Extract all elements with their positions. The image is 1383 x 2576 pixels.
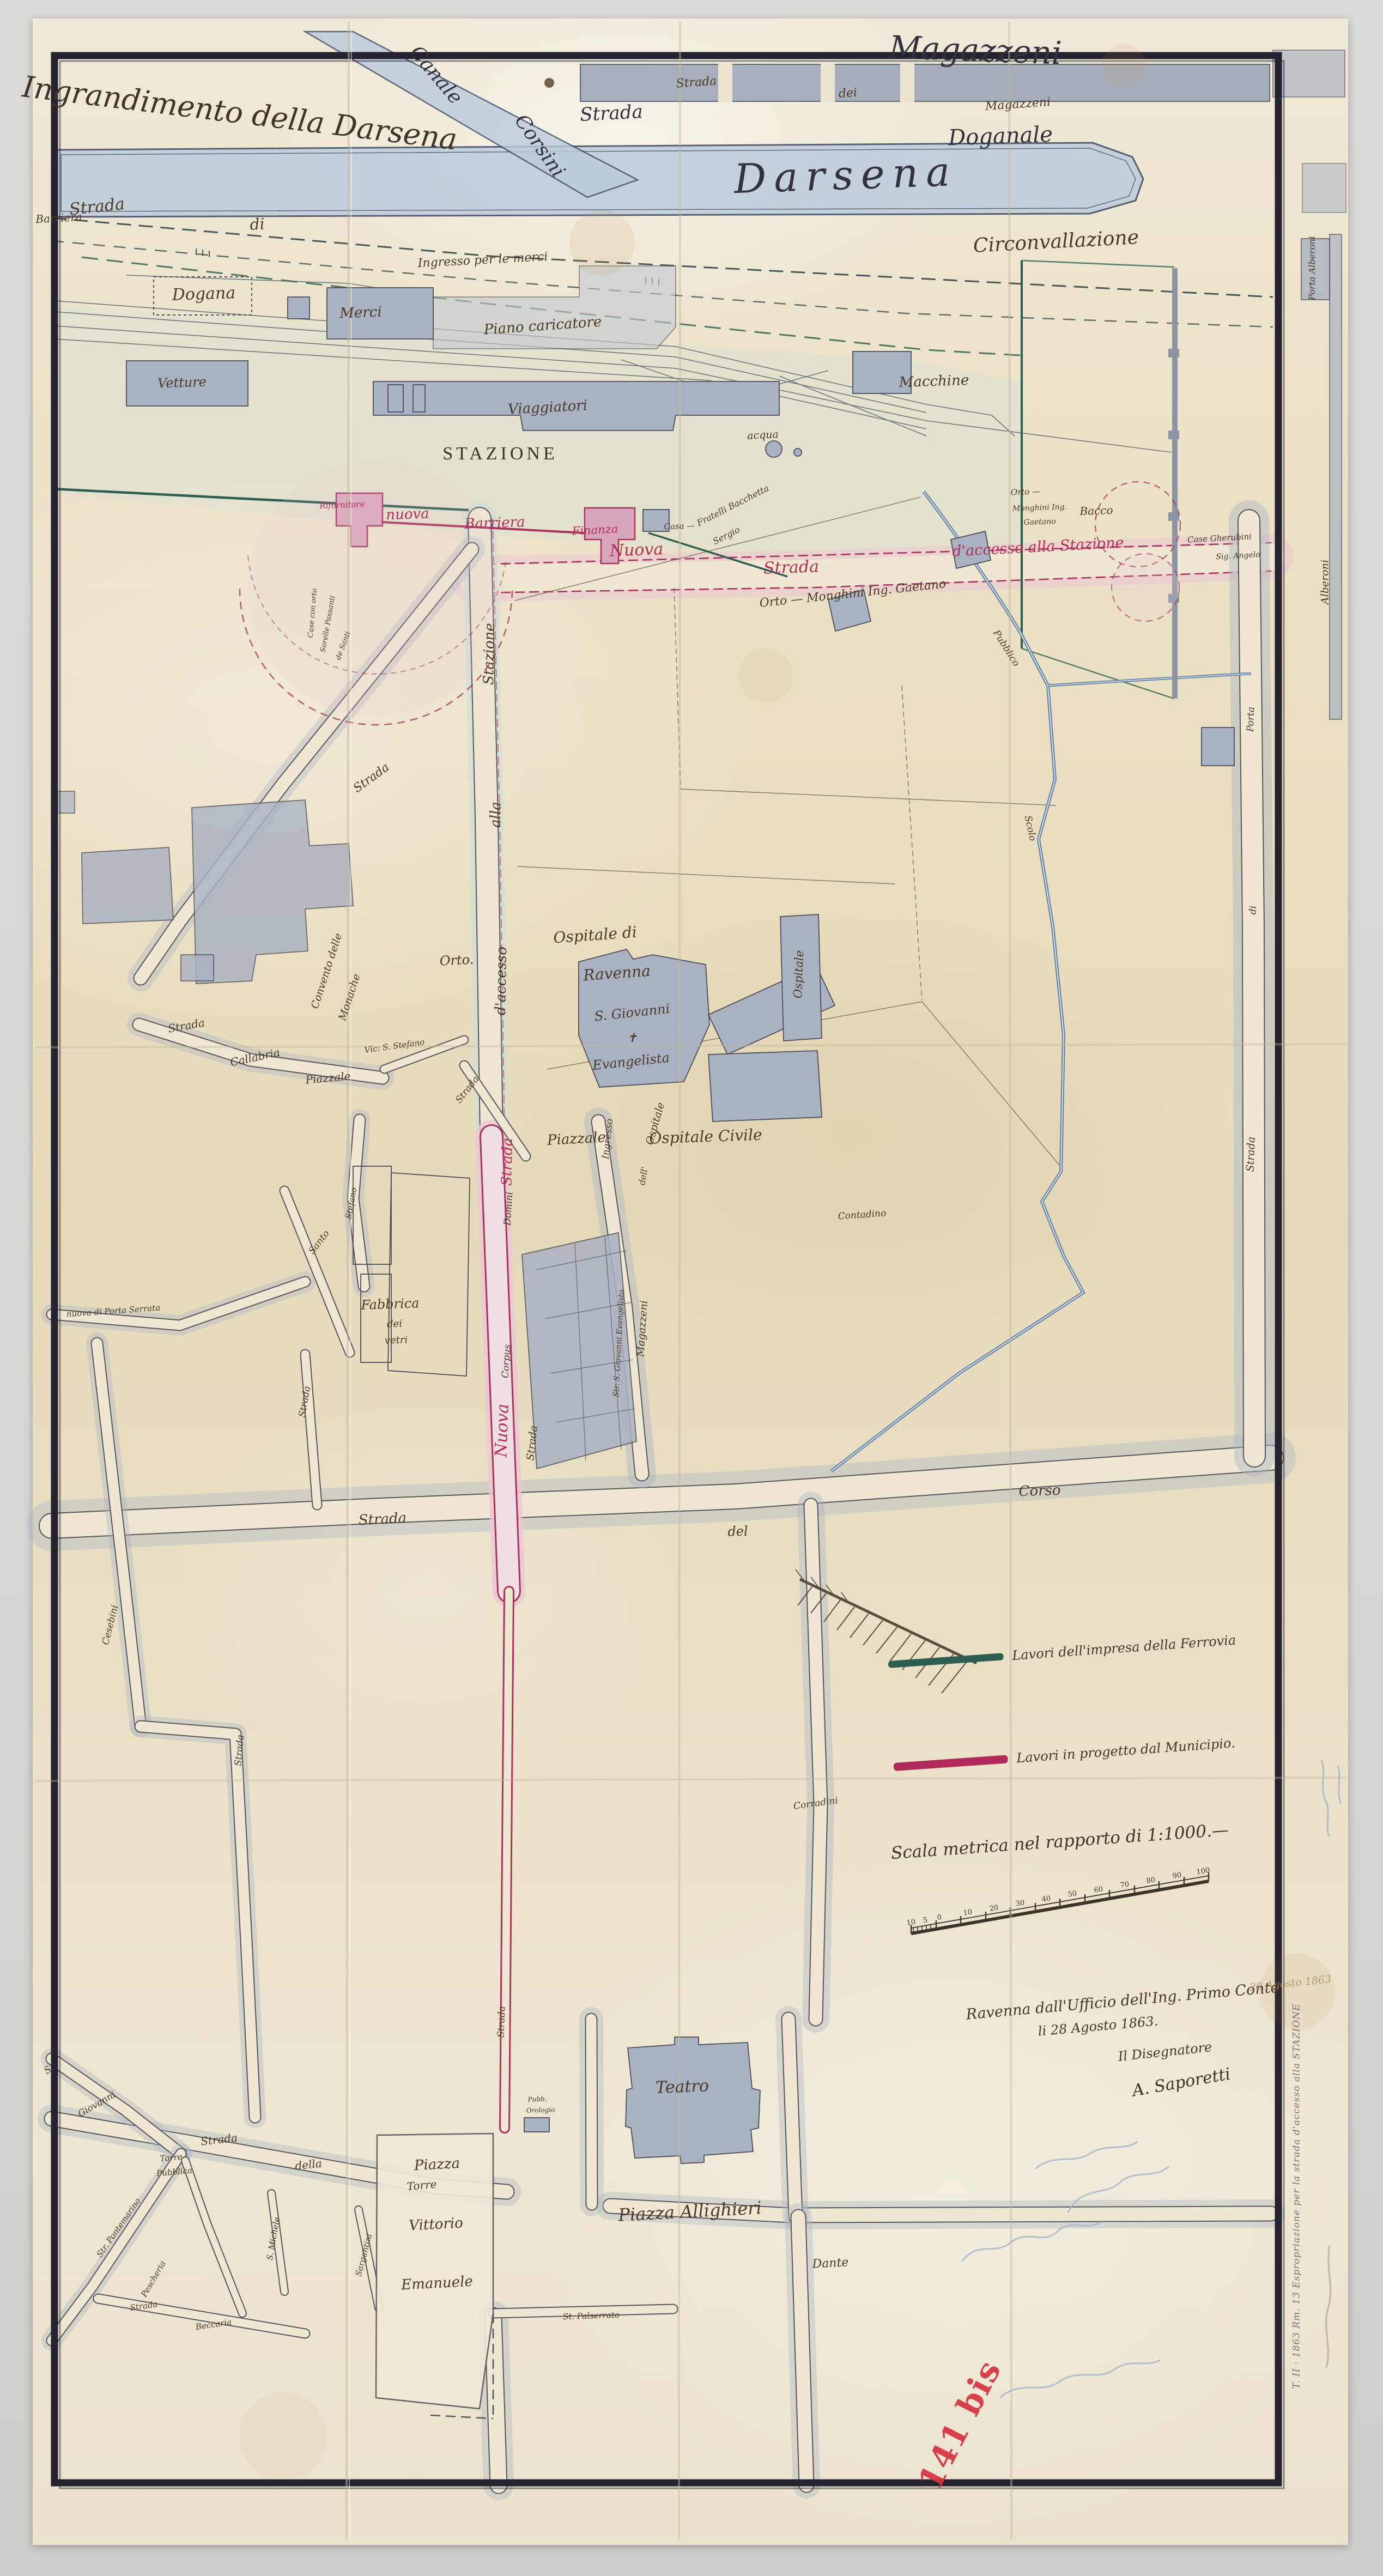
map-label: Callabria (229, 1047, 281, 1068)
map-label: Emanuele (401, 2275, 474, 2293)
map-label: Nuova (493, 1403, 511, 1457)
map-label: 40 (1041, 1895, 1051, 1903)
map-label: Ospitale (792, 950, 805, 999)
map-label: 10 (963, 1908, 973, 1917)
map-label: Strada (69, 196, 126, 218)
map-label: acqua (747, 429, 779, 441)
map-label: Piazza (414, 2156, 460, 2173)
map-label: Strada (525, 1425, 539, 1461)
map-label: del (727, 1524, 748, 1538)
map-label: Doganale (948, 124, 1053, 149)
map-label: Porta Alberoni (1308, 236, 1317, 300)
map-label: dei (838, 87, 858, 100)
map-label: Merci (339, 305, 382, 321)
map-label: Sergio (712, 525, 742, 546)
map-label: Stazione (482, 623, 497, 685)
map-label: Darsena (733, 151, 959, 199)
map-label: Gaetano (1023, 518, 1056, 526)
map-label: Teatro (656, 2078, 709, 2096)
map-label: Fratelli Bacchetta (695, 484, 770, 528)
map-labels-group: CanaleCorsiniMagazzeniStradadeiMagazzeni… (0, 0, 1383, 2576)
map-label: Corpus (501, 1344, 512, 1379)
map-label: Corso (1018, 1483, 1061, 1499)
map-label: St. Palserrato (563, 2311, 620, 2322)
map-label: Porta (1246, 707, 1257, 732)
map-label: Dogana (172, 285, 235, 304)
map-label: Str. S. Giovanni Evangelista (612, 1289, 626, 1397)
map-label: Piazzale (305, 1070, 351, 1085)
edge-annotation: T. II · 1863 Rm. 13 Espropriazione per l… (1293, 2004, 1302, 2389)
map-label: Piazzale (547, 1130, 606, 1148)
map-label: S. Michele (266, 2216, 282, 2260)
map-label: Piano caricatore (483, 314, 602, 337)
map-label: Case Gherubini (1187, 532, 1252, 544)
map-label: 90 (1172, 1871, 1182, 1880)
map-label: Pubblica (156, 2167, 193, 2178)
map-label: Strada (454, 1075, 481, 1105)
map-label: Pescheria (140, 2259, 167, 2298)
map-label: Sorelle Passanti (319, 595, 336, 653)
map-label: nuova di Porta Serrata (66, 1304, 160, 1319)
map-label: Magazzeni (635, 1300, 650, 1357)
map-label: 20 (989, 1904, 999, 1912)
map-label: Ingresso per le merci (417, 251, 548, 270)
map-label: Sargantini (354, 2233, 373, 2277)
map-label: Ospitale Civile (649, 1127, 762, 1146)
map-label: Domini (503, 1192, 514, 1226)
map-label: 100 (1196, 1867, 1211, 1876)
map-label: Strada (351, 761, 391, 795)
map-label: Circonvallazione (973, 228, 1139, 256)
map-label: Torre (160, 2153, 183, 2163)
map-label: Strada (676, 75, 717, 90)
map-label: Orto. (439, 953, 474, 967)
map-label: Monache (337, 973, 362, 1022)
map-label: Bacco (1079, 505, 1113, 517)
map-label: nuova (386, 507, 429, 523)
map-label: Finanza (572, 523, 618, 537)
map-label: d'accesso alla Stazione (952, 535, 1125, 559)
map-label: de Santi (335, 631, 352, 661)
map-label: Strada (763, 559, 820, 577)
map-label: Orto — (1011, 488, 1041, 497)
map-label: Strada (167, 1017, 205, 1034)
map-label: d'accesso (494, 947, 509, 1016)
map-label: Orto — Monghini Ing. Gaetano (759, 578, 947, 610)
map-label: Ospitale di (553, 925, 637, 946)
map-label: Orologio (526, 2106, 555, 2114)
map-label: Pubb. (527, 2095, 547, 2102)
map-label: 10 (906, 1918, 916, 1926)
map-label: dell' (638, 1166, 650, 1186)
map-label: Strada (298, 1385, 313, 1418)
map-label: Nuova (609, 541, 663, 559)
map-label: Scolo (1023, 815, 1037, 842)
map-label: Cesebini (101, 1604, 120, 1646)
map-label: Strada (579, 102, 643, 124)
map-label: Fabbrica (361, 1296, 420, 1312)
map-label: Strada (234, 1734, 246, 1766)
map-label: 60 (1094, 1886, 1103, 1894)
map-label: Barriera (464, 515, 525, 531)
map-label: 30 (1015, 1899, 1025, 1907)
map-label: di (250, 216, 265, 232)
map-label: Contadino (838, 1209, 887, 1221)
map-label: Canale (407, 43, 466, 108)
map-label: Strada (496, 2006, 507, 2038)
map-label: Macchine (899, 373, 969, 390)
map-label: S. Giovanni (594, 1002, 670, 1023)
map-label: Corsini (511, 111, 568, 181)
map-label: STAZIONE (442, 445, 557, 463)
map-label: ✝ (627, 1033, 637, 1045)
map-label: Torre (407, 2179, 437, 2192)
map-label: Vic: S. Stefano (364, 1038, 425, 1054)
label-layer: Ingrandimento della Darsena CanaleCorsin… (0, 0, 1383, 2576)
map-label: Piazza Allighieri (618, 2199, 762, 2224)
map-label: Dante (812, 2257, 849, 2270)
map-label: Magazzeni (889, 31, 1063, 69)
map-label: Str. Pontemarino (95, 2197, 142, 2259)
map-label: Strada (200, 2132, 238, 2147)
map-label: vetri (384, 1335, 408, 1345)
map-label: Magazzeni (985, 96, 1051, 113)
map-label: 50 (1067, 1890, 1077, 1898)
map-label: Alberoni (1320, 560, 1331, 604)
map-label: Sig. Angelo (1216, 551, 1260, 561)
map-label: Giovanni (77, 2090, 118, 2119)
map-label: Viaggiatori (507, 398, 587, 417)
map-label: Convento delle (310, 932, 344, 1010)
map-label: Rifornitore (319, 500, 365, 510)
map-label: Casa — (664, 522, 695, 531)
map-label: Strada (358, 1511, 407, 1528)
map-label: della (294, 2157, 322, 2171)
map-label: Vittorio (409, 2216, 464, 2233)
map-label: S. (43, 2063, 55, 2076)
map-label: Corradini (793, 1796, 839, 1811)
map-label: Case con orto (307, 588, 319, 638)
map-label: di (1248, 906, 1258, 915)
map-label: Monghini Ing. (1012, 503, 1067, 512)
map-label: alla (489, 802, 504, 828)
map-label: Strada (130, 2300, 159, 2312)
map-label: Strada (500, 1138, 515, 1186)
map-label: Stefano (345, 1187, 359, 1220)
map-label: Evangelista (592, 1051, 670, 1072)
map-label: Beccaria (195, 2318, 232, 2331)
map-label: Santo (307, 1229, 331, 1256)
map-label: 0 (937, 1914, 942, 1922)
map-label: 80 (1146, 1876, 1156, 1884)
map-label: 5 (923, 1917, 928, 1924)
scanned-map-photo: Ingrandimento della Darsena CanaleCorsin… (0, 0, 1383, 2576)
map-label: dei (387, 1319, 403, 1330)
map-label: 70 (1120, 1881, 1130, 1889)
map-label: Vetture (157, 375, 207, 390)
map-label: Strada (1245, 1136, 1257, 1172)
map-label: Ravenna (583, 963, 651, 984)
map-label: Pubblico (991, 629, 1021, 668)
